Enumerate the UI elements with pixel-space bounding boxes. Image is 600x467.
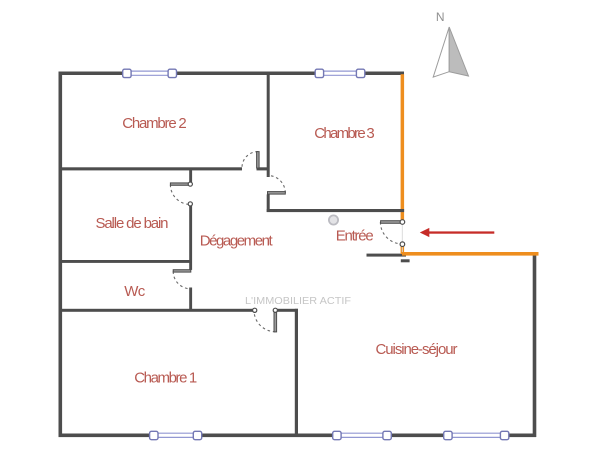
svg-text:Dégagement: Dégagement [200, 232, 274, 249]
svg-text:N: N [436, 10, 445, 24]
svg-text:Chambre 3: Chambre 3 [314, 125, 375, 142]
svg-text:Chambre 1: Chambre 1 [134, 369, 197, 386]
svg-text:Chambre 2: Chambre 2 [122, 115, 187, 132]
svg-text:Wc: Wc [124, 283, 146, 300]
svg-text:Cuisine-séjour: Cuisine-séjour [376, 341, 458, 358]
svg-text:Salle de bain: Salle de bain [96, 215, 169, 232]
svg-text:Entrée: Entrée [336, 228, 374, 245]
svg-text:L'IMMOBILIER ACTIF: L'IMMOBILIER ACTIF [245, 296, 351, 307]
